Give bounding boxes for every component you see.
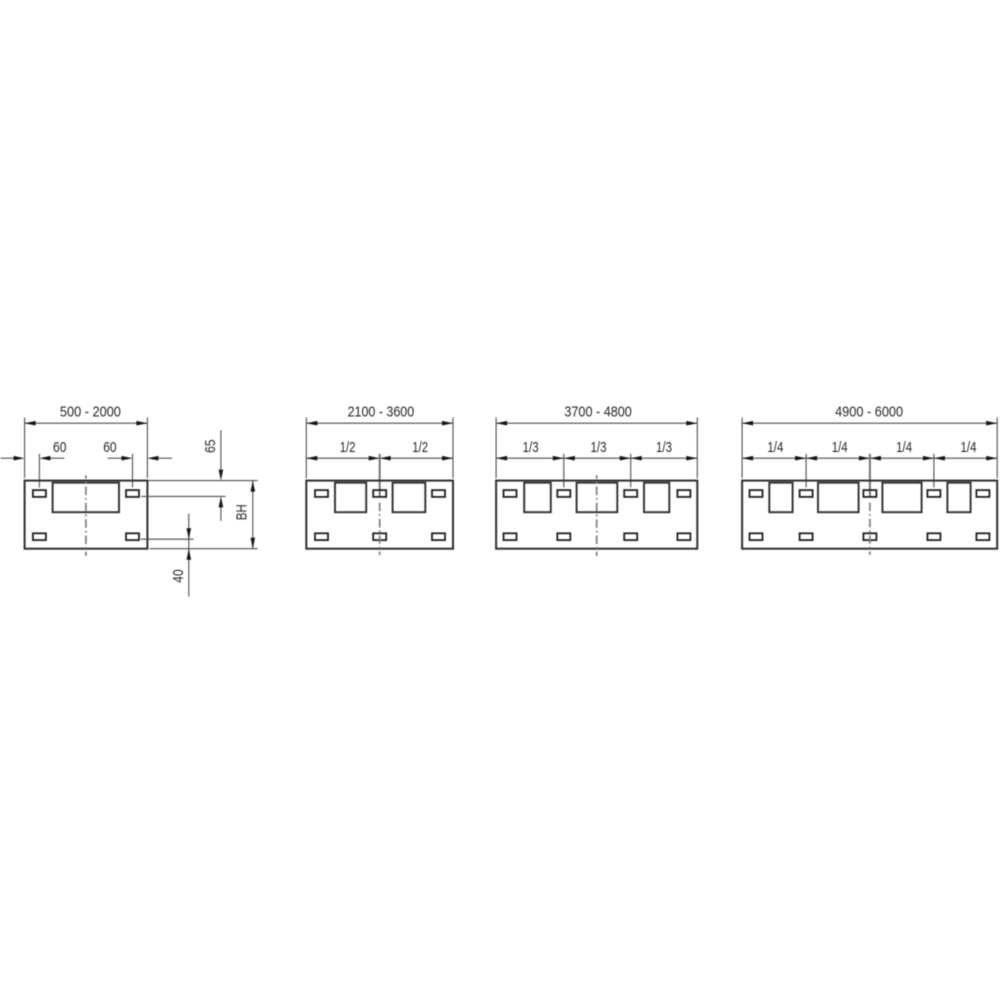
svg-text:2100 - 3600: 2100 - 3600 <box>348 403 415 420</box>
svg-text:1/3: 1/3 <box>656 439 672 456</box>
svg-text:3700 - 4800: 3700 - 4800 <box>564 403 631 420</box>
svg-text:500 - 2000: 500 - 2000 <box>60 403 121 420</box>
svg-text:1/4: 1/4 <box>961 439 977 456</box>
svg-text:BH: BH <box>233 504 250 520</box>
svg-text:1/4: 1/4 <box>896 439 912 456</box>
svg-text:1/2: 1/2 <box>340 439 356 456</box>
svg-text:60: 60 <box>103 439 116 456</box>
svg-text:1/3: 1/3 <box>591 439 607 456</box>
svg-text:1/4: 1/4 <box>832 439 848 456</box>
svg-text:1/4: 1/4 <box>767 439 783 456</box>
svg-text:1/2: 1/2 <box>412 439 428 456</box>
svg-text:40: 40 <box>170 569 187 582</box>
svg-text:4900 - 6000: 4900 - 6000 <box>835 403 903 420</box>
svg-text:65: 65 <box>202 440 219 453</box>
svg-text:60: 60 <box>53 439 66 456</box>
svg-text:1/3: 1/3 <box>523 439 539 456</box>
